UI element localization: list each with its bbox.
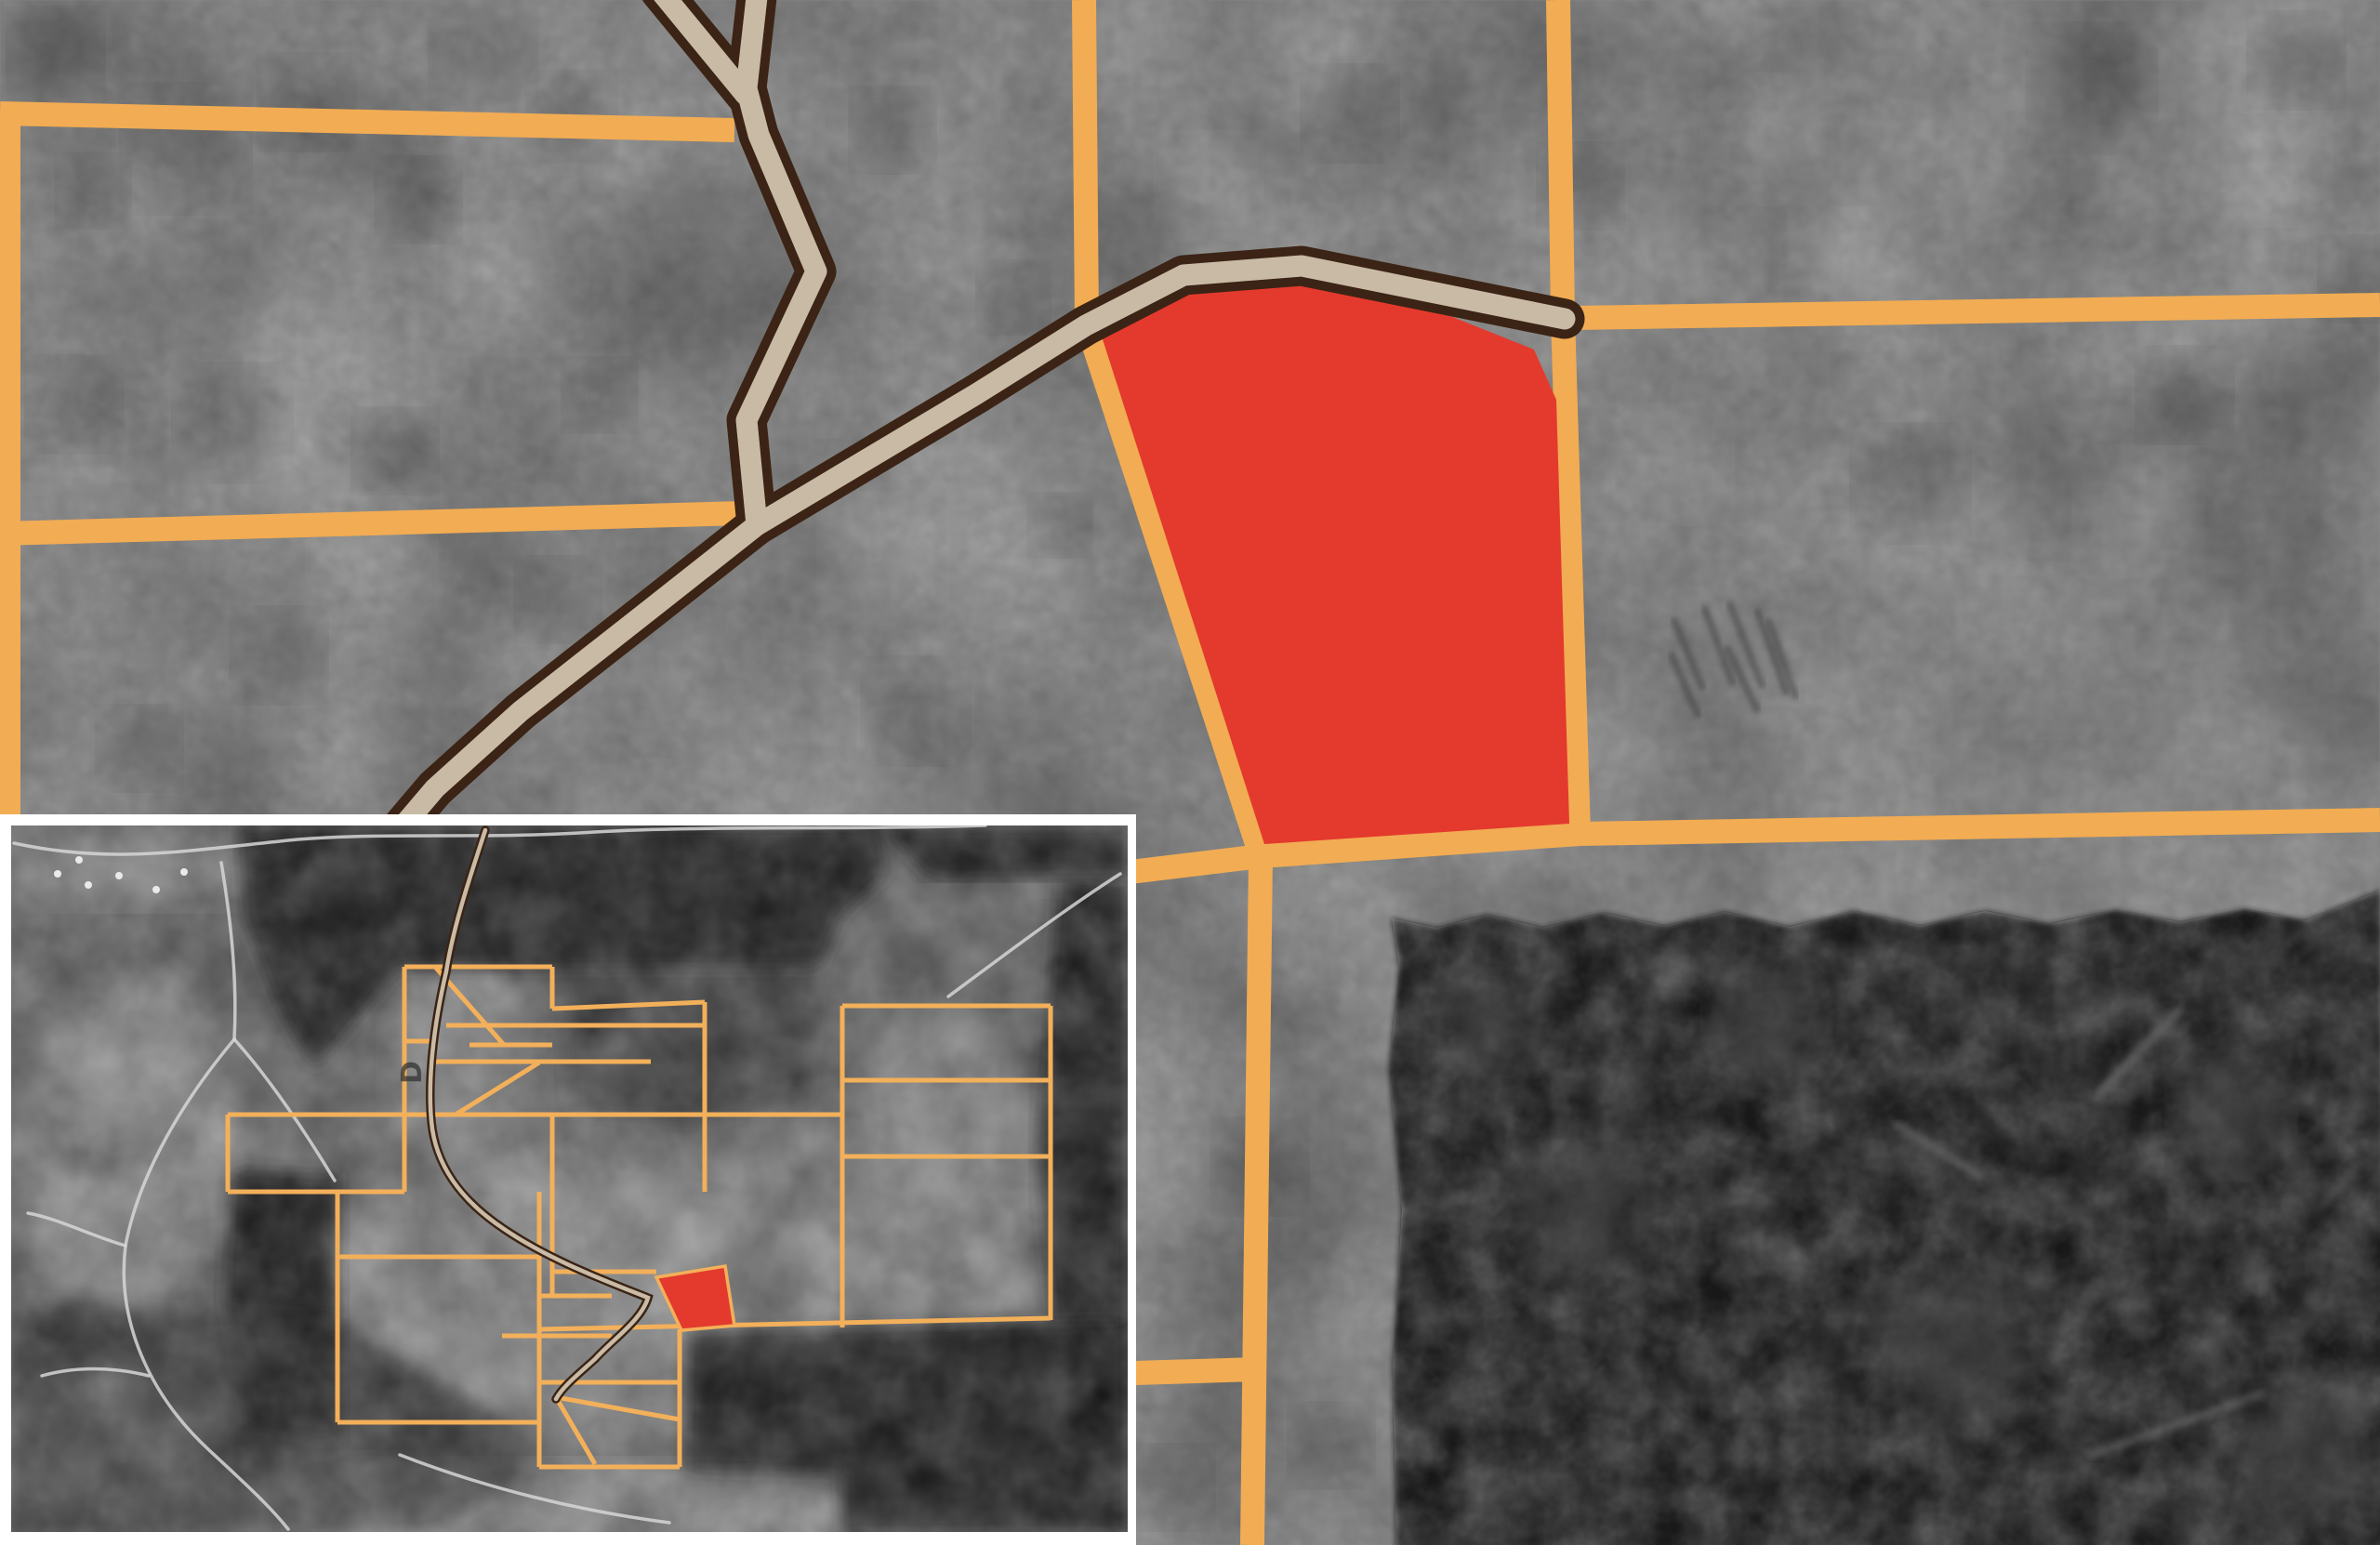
aerial-dark-patch (358, 414, 432, 488)
aerial-dark-patch (1134, 1450, 1209, 1525)
aerial-dark-patch (2036, 33, 2148, 144)
forest-light-patch (2241, 1385, 2371, 1515)
inset-structure-dot (54, 870, 61, 878)
aerial-light-patch (2231, 125, 2324, 218)
aerial-dark-patch (1032, 497, 1088, 553)
inset-structure-dot (152, 886, 160, 893)
aerial-light-patch (1162, 139, 1255, 232)
inset-structure-dot (115, 872, 123, 879)
aerial-dark-patch (181, 372, 284, 474)
aerial-dark-patch (102, 711, 177, 786)
aerial-dark-patch (60, 158, 126, 223)
aerial-dark-patch (521, 562, 595, 637)
forest-light-patch (1515, 1143, 1646, 1274)
aerial-dark-patch (2143, 353, 2227, 437)
forest-light-patch (1711, 967, 1822, 1078)
parcel-boundary-line-east-upper (1575, 305, 2380, 318)
inset-light-patch (19, 976, 242, 1311)
aerial-light-patch (2082, 456, 2194, 567)
parcel-boundary-line-south-stub (1134, 1369, 1256, 1373)
map-canvas[interactable]: D (0, 0, 2380, 1545)
inset-light-patch (9, 832, 270, 906)
aerial-dark-patch (855, 93, 930, 167)
aerial-dark-patch (2254, 19, 2338, 102)
inset-forest-mass-soft (558, 969, 818, 1120)
aerial-dark-patch (1308, 72, 1392, 155)
aerial-dark-patch (1859, 432, 1962, 535)
parcel-boundary-line-south-vertical (1252, 856, 1261, 1545)
aerial-dark-patch (381, 163, 456, 237)
aerial-dark-patch (567, 363, 632, 428)
aerial-dark-patch (237, 614, 321, 697)
forest-light-patch (1878, 1274, 2027, 1422)
aerial-dark-patch (33, 363, 116, 446)
aerial-light-patch (446, 214, 576, 344)
parcel-boundary-line-top-west (0, 113, 734, 130)
aerial-dark-patch (982, 266, 1045, 329)
map-scene: D (0, 0, 2380, 1545)
forest-light-patch (2175, 1060, 2287, 1171)
inset-road-label: D (396, 1061, 429, 1084)
aerial-light-patch (1622, 414, 1725, 516)
inset-map-content[interactable]: D (9, 825, 1134, 1545)
aerial-dark-patch (869, 665, 962, 758)
aerial-light-patch (827, 502, 939, 614)
aerial-dark-patch (14, 14, 98, 98)
forest-light-patch (1441, 976, 1534, 1069)
aerial-light-patch (1971, 576, 2120, 725)
inset-structure-dot (85, 881, 92, 889)
aerial-dark-patch (1294, 1408, 1368, 1483)
aerial-light-patch (1711, 84, 1822, 195)
inset-structure-dot (75, 856, 83, 864)
aerial-dark-patch (437, 9, 530, 102)
inset-structure-dot (180, 868, 188, 876)
